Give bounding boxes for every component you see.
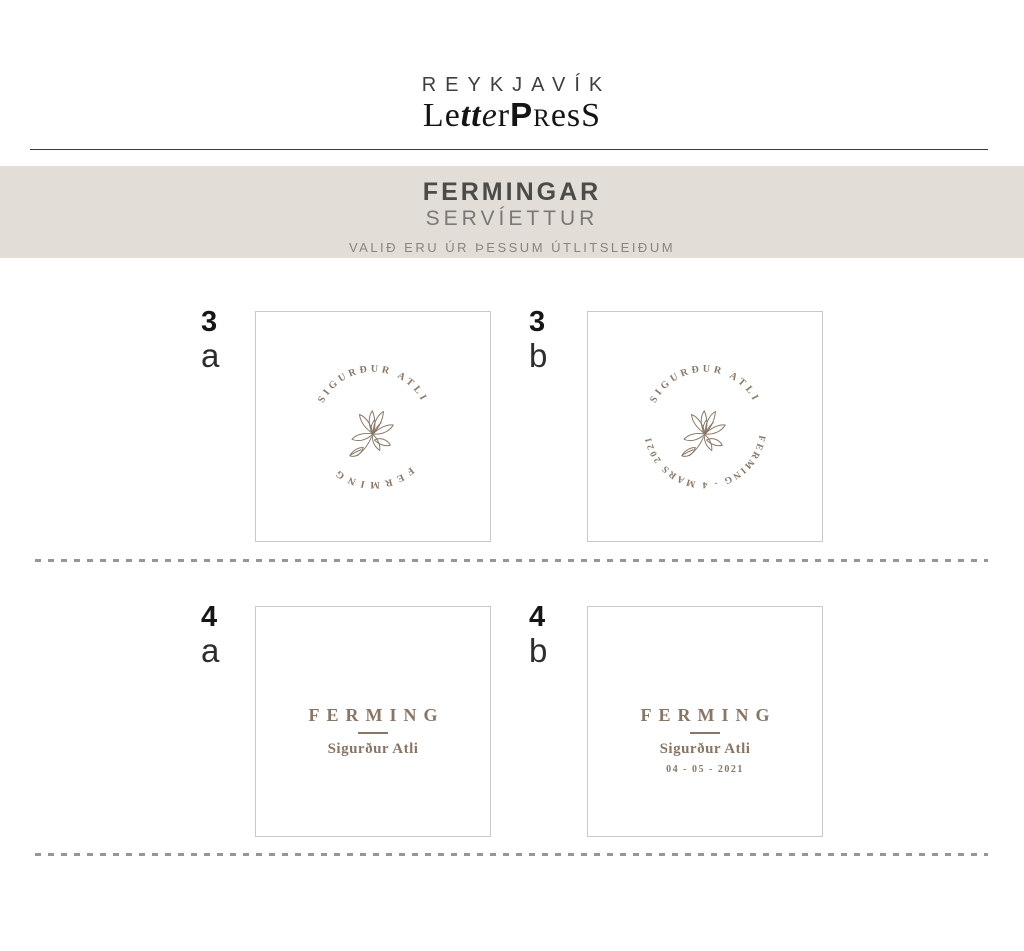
logo-letter: L xyxy=(423,97,445,134)
design-number: 4 xyxy=(201,601,253,634)
logo-letter: es xyxy=(551,97,581,134)
arc-name-text: SIGURÐUR ATLI xyxy=(648,363,762,404)
typographic-monogram-4a: FERMING Sigurður Atli xyxy=(256,705,490,758)
dashed-separator xyxy=(35,853,988,856)
logo-letter: S xyxy=(581,97,601,134)
person-name: Sigurður Atli xyxy=(588,741,822,758)
banner-note: VALIÐ ERU ÚR ÞESSUM ÚTLITSLEIÐUM xyxy=(0,240,1024,255)
arc-name-textpath: SIGURÐUR ATLI xyxy=(316,363,430,404)
arc-name-textpath: SIGURÐUR ATLI xyxy=(648,363,762,404)
design-label-4b: 4 b xyxy=(529,601,581,667)
logo-letter: tt xyxy=(461,97,482,134)
design-label-3a: 3 a xyxy=(201,306,253,372)
occasion-title: FERMING xyxy=(256,705,490,726)
event-date: 04 - 05 - 2021 xyxy=(588,764,822,775)
arc-occasion-text: FERMING xyxy=(330,464,416,489)
brand-name-letterpress: LetterPResS xyxy=(0,98,1024,134)
logo-letter: e xyxy=(445,97,461,134)
header-divider-line xyxy=(30,149,988,150)
logo-letter: e xyxy=(482,97,498,134)
person-name: Sigurður Atli xyxy=(256,741,490,758)
dashed-separator xyxy=(35,559,988,562)
design-number: 3 xyxy=(529,306,581,339)
design-variant-letter: b xyxy=(529,339,581,372)
design-variant-letter: a xyxy=(201,634,253,667)
wreath-monogram-3b: SIGURÐUR ATLI FERMING - 4 MARS 2021 xyxy=(625,347,785,507)
design-label-4a: 4 a xyxy=(201,601,253,667)
wreath-monogram-3a: SIGURÐUR ATLI FERMING xyxy=(293,347,453,507)
magnolia-flower-icon xyxy=(682,410,726,456)
logo-letter: r xyxy=(498,97,510,134)
arc-occasion-textpath: FERMING xyxy=(330,464,416,489)
logo-letter: P xyxy=(510,96,533,133)
typographic-monogram-4b: FERMING Sigurður Atli 04 - 05 - 2021 xyxy=(588,705,822,775)
design-variant-letter: b xyxy=(529,634,581,667)
design-number: 3 xyxy=(201,306,253,339)
arc-name-text: SIGURÐUR ATLI xyxy=(316,363,430,404)
design-number: 4 xyxy=(529,601,581,634)
napkin-option-3b[interactable]: SIGURÐUR ATLI FERMING - 4 MARS 2021 xyxy=(587,311,823,542)
brand-logo: REYKJAVÍK LetterPResS xyxy=(0,74,1024,134)
napkin-option-4b[interactable]: FERMING Sigurður Atli 04 - 05 - 2021 xyxy=(587,606,823,837)
ornament-rule xyxy=(358,732,388,734)
page-title: FERMINGAR xyxy=(0,178,1024,207)
ornament-rule xyxy=(690,732,720,734)
magnolia-flower-icon xyxy=(350,410,394,456)
page-subtitle: SERVÍETTUR xyxy=(0,207,1024,231)
napkin-option-3a[interactable]: SIGURÐUR ATLI FERMING xyxy=(255,311,491,542)
logo-letter: R xyxy=(533,105,551,132)
design-label-3b: 3 b xyxy=(529,306,581,372)
category-banner: FERMINGAR SERVÍETTUR VALIÐ ERU ÚR ÞESSUM… xyxy=(0,166,1024,258)
napkin-option-4a[interactable]: FERMING Sigurður Atli xyxy=(255,606,491,837)
brand-name-reykjavik: REYKJAVÍK xyxy=(0,74,1024,97)
design-variant-letter: a xyxy=(201,339,253,372)
occasion-title: FERMING xyxy=(588,705,822,726)
